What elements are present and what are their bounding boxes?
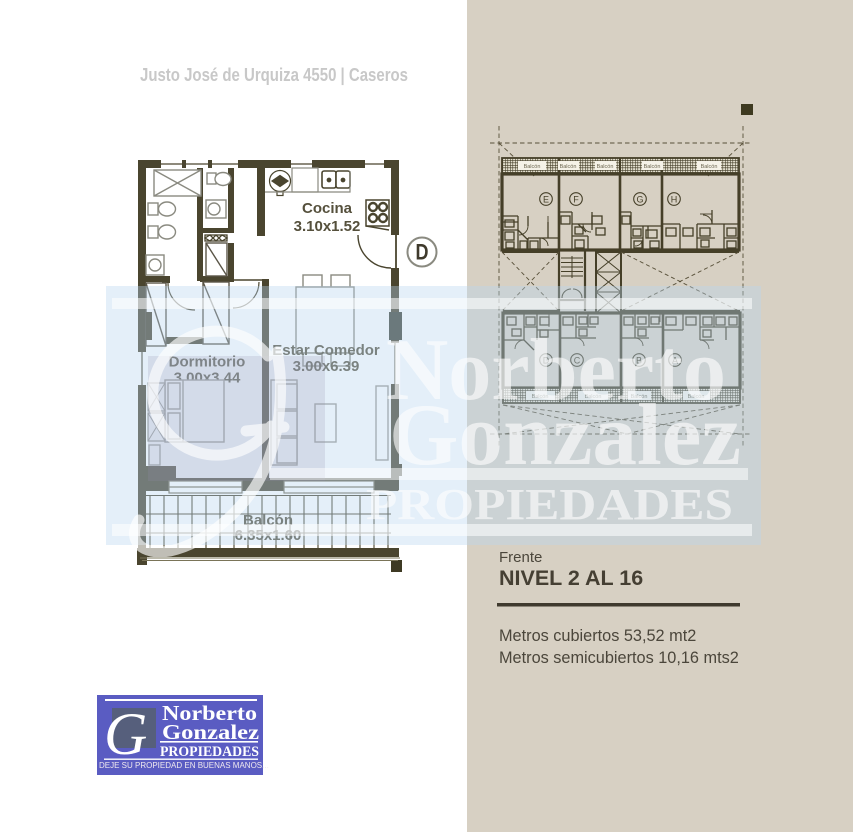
svg-text:G: G (636, 195, 643, 205)
svg-text:Balcón: Balcón (701, 164, 718, 170)
svg-text:Balcón: Balcón (644, 164, 661, 170)
svg-text:H: H (671, 195, 678, 205)
svg-text:PROPIEDADES: PROPIEDADES (160, 744, 259, 760)
svg-text:Gonzalez: Gonzalez (389, 387, 741, 484)
svg-text:D: D (416, 240, 429, 265)
svg-text:Metros semicubiertos 10,16 mts: Metros semicubiertos 10,16 mts2 (499, 649, 739, 667)
svg-text:Balcón: Balcón (524, 164, 541, 170)
svg-text:Gonzalez: Gonzalez (162, 720, 259, 744)
svg-text:Justo José de Urquiza 4550 |: Justo José de Urquiza 4550 | Caseros (140, 65, 408, 85)
svg-text:PROPIEDADES: PROPIEDADES (366, 480, 733, 529)
svg-text:DEJE SU PROPIEDAD EN BUENAS MA: DEJE SU PROPIEDAD EN BUENAS MANOS... (99, 761, 269, 770)
svg-text:Balcón: Balcón (597, 164, 614, 170)
svg-text:Frente: Frente (499, 549, 542, 566)
svg-text:Balcón: Balcón (560, 164, 577, 170)
svg-text:F: F (573, 195, 579, 205)
svg-text:3.10x1.52: 3.10x1.52 (294, 218, 361, 235)
svg-text:G: G (104, 701, 147, 767)
svg-text:Cocina: Cocina (302, 200, 353, 217)
svg-text:Metros cubiertos 53,52 mt2: Metros cubiertos 53,52 mt2 (499, 627, 696, 645)
svg-text:E: E (543, 195, 549, 205)
svg-text:NIVEL 2 AL 16: NIVEL 2 AL 16 (499, 566, 643, 590)
